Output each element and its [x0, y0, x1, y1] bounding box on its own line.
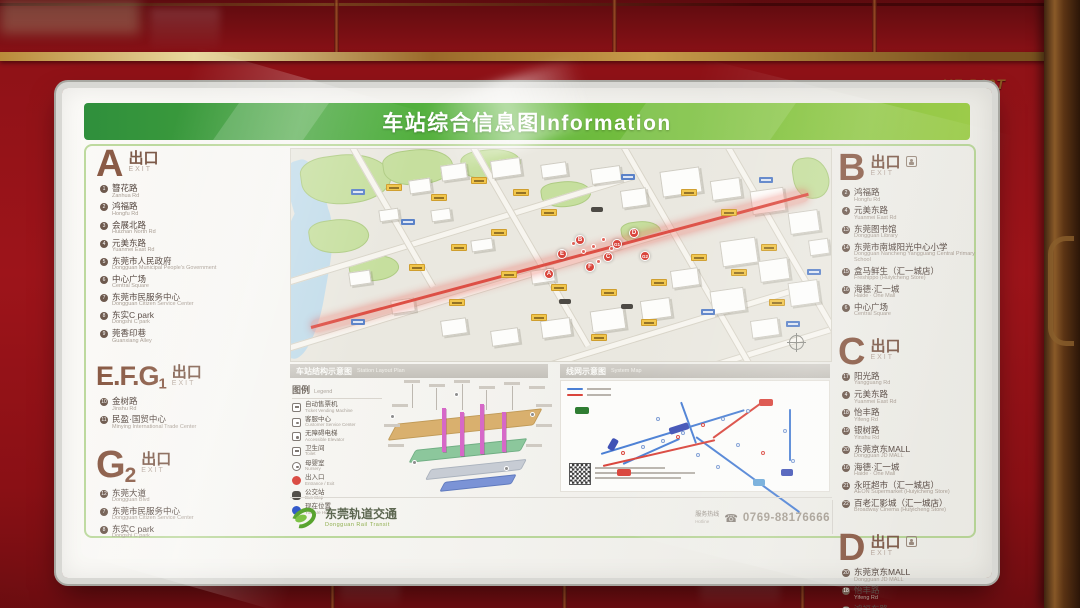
- legend-label-en: Toilet: [305, 452, 325, 457]
- exit-destination: 10金树路Jinshu Rd: [100, 397, 280, 412]
- destination-text: 东莞大道Dongguan Blvd: [112, 489, 150, 504]
- map-building: [808, 238, 830, 257]
- poi-number-badge: 21: [842, 482, 850, 490]
- exit-destination: 3会展北路Huizhan North Rd: [100, 221, 280, 236]
- destination-en: Minying International Trade Center: [112, 425, 196, 431]
- map-building: [640, 297, 672, 321]
- destination-text: 东莞市民服务中心Dongguan Citizen Service Center: [112, 507, 194, 522]
- bus-stop-label: [559, 299, 571, 304]
- poi-number-badge: 22: [842, 500, 850, 508]
- destination-en: Yuanmei East Rd: [854, 400, 897, 406]
- road-label: [786, 321, 800, 327]
- road-label: [759, 177, 773, 183]
- wall-seam: [330, 578, 335, 608]
- poi-number-badge: 4: [100, 240, 108, 248]
- exit-destination: 22百老汇影城（汇一城店）Broadway Cinema (Huiyicheng…: [842, 499, 976, 514]
- poi-label: [451, 244, 467, 251]
- map-building: [787, 279, 820, 307]
- station-level-slab: [409, 438, 528, 463]
- poi-number-badge: 5: [100, 258, 108, 266]
- footer-vertical-divider: [832, 500, 833, 534]
- destination-text: 东莞市民服务中心Dongguan Citizen Service Center: [112, 293, 194, 308]
- title-banner: 车站综合信息图Information: [84, 103, 970, 140]
- legend-text: 自动售票机Ticket Vending Machine: [305, 402, 353, 413]
- exit-destination: 9莞香印巷Guanxiang Alley: [100, 329, 280, 344]
- map-building: [490, 327, 520, 347]
- exit-destination: 4元美东路Yuanmei East Rd: [100, 239, 280, 254]
- poi-label: [431, 194, 447, 201]
- station-dot: [621, 451, 625, 455]
- map-building: [590, 307, 627, 334]
- qr-caption-line: [595, 472, 695, 474]
- destination-en: Dongguan Library: [854, 234, 898, 240]
- destination-en: Zanhua Rd: [112, 194, 139, 200]
- poi-label: [681, 189, 697, 196]
- exit-destination: 12东莞大道Dongguan Blvd: [100, 489, 280, 504]
- structure-exit-dot: [454, 392, 459, 397]
- map-building: [490, 157, 522, 179]
- legend-title: 图例 Legend: [292, 383, 382, 399]
- station-dot: [791, 459, 795, 463]
- map-exit-badge: D: [629, 228, 639, 238]
- legend-label-en: Nursery: [305, 467, 325, 472]
- wall-reflection: [700, 580, 780, 608]
- destination-en: Dongguan Citizen Service Center: [112, 302, 194, 308]
- wall-seam: [0, 3, 1080, 6]
- station-dot: [676, 435, 680, 439]
- destination-text: 会展北路Huizhan North Rd: [112, 221, 156, 236]
- exit-group-e.f.g1: E.F.G1出口EXIT10金树路Jinshu Rd11民盈·国贸中心Minyi…: [96, 362, 280, 433]
- exit-destination: 6中心广场Central Square: [100, 275, 280, 290]
- poi-number-badge: 20: [842, 569, 850, 577]
- information-board: 车站综合信息图Information A出口EXIT1簪花路Zanhua Rd2…: [62, 88, 992, 578]
- exit-destination: 6中心广场Central Square: [842, 303, 976, 318]
- layout-title: 车站结构示意图: [296, 366, 352, 377]
- poi-number-badge: 6: [842, 304, 850, 312]
- brand-logo-icon: [290, 508, 318, 528]
- legend-text: 客服中心Customer Service Center: [305, 417, 356, 428]
- legend-label-en: Entrance / Exit: [305, 482, 334, 487]
- structure-exit-dot: [530, 412, 535, 417]
- exit-label-zh: 出口: [870, 155, 900, 170]
- poi-label: [761, 244, 777, 251]
- map-building: [348, 270, 372, 287]
- exit-destination: 8东实C parkDongshi C park: [100, 525, 280, 540]
- elevator-shaft: [442, 408, 446, 452]
- poi-number-badge: 6: [100, 276, 108, 284]
- callout-label: [529, 386, 545, 389]
- exit-letter: E.F.G1: [96, 362, 166, 393]
- exit-letter: B: [838, 152, 864, 184]
- destination-en: Broadway Cinema (Huiyicheng Store): [854, 508, 948, 514]
- destination-en: Huizhan North Rd: [112, 230, 156, 236]
- station-photo: HF-P19T 车站综合信息图Information A出口EXIT1簪花路Za…: [0, 0, 1080, 608]
- destination-text: 海德·汇一城Haide · One Mall: [854, 463, 899, 478]
- station-dot: [696, 453, 700, 457]
- elevator-shaft: [502, 412, 506, 452]
- callout-label: [504, 382, 520, 385]
- legend-text: 母婴室Nursery: [305, 461, 325, 472]
- exit-group-d: D出口EXIT20东莞京东MALLDongguan JD MALL18怡丰路Yi…: [838, 532, 976, 608]
- footer-divider-line: [290, 497, 832, 498]
- exit-group-a: A出口EXIT1簪花路Zanhua Rd2鸿福路Hongfu Rd3会展北路Hu…: [96, 148, 280, 347]
- callout-line: [462, 384, 463, 410]
- callout-label: [526, 444, 542, 447]
- exit-header: B出口EXIT: [838, 152, 976, 184]
- destination-en: Hongfu Rd: [112, 212, 138, 218]
- elevator-icon: [906, 536, 917, 547]
- poi-number-badge: 2: [100, 203, 108, 211]
- exit-header: C出口EXIT: [838, 336, 976, 368]
- nursery-icon: [292, 462, 301, 471]
- qr-caption-line: [595, 477, 681, 479]
- map-building: [670, 267, 700, 289]
- qr-code: [569, 463, 591, 485]
- legend-label-en: Customer Service Center: [305, 423, 356, 428]
- poi-label: [501, 271, 517, 278]
- map-exit-badge: G2: [640, 251, 650, 261]
- map-building: [788, 209, 821, 235]
- legend-title-en: Legend: [314, 389, 332, 395]
- poi-number-badge: 7: [100, 294, 108, 302]
- destination-text: 海德·汇一城Haide · One Mall: [854, 285, 899, 300]
- line-name-badge: [668, 422, 689, 435]
- exit-destination: 4元美东路Yuanmei East Rd: [842, 390, 976, 405]
- exit-label-en: EXIT: [870, 170, 900, 177]
- service-center-icon: [292, 418, 301, 427]
- poi-number-badge: 11: [100, 416, 108, 424]
- hotline-label: 服务热线 Hotline: [695, 512, 719, 524]
- destination-en: Yangguang Rd: [854, 381, 890, 387]
- map-building: [470, 238, 493, 253]
- poi-label: [691, 254, 707, 261]
- map-exit-badge: C: [603, 252, 613, 262]
- exit-label-zh: 出口: [128, 151, 158, 166]
- road-label: [351, 319, 365, 325]
- station-dot: [681, 431, 685, 435]
- exit-letter: C: [838, 336, 864, 368]
- exit-destination: 18怡丰路Yifeng Rd: [842, 408, 976, 423]
- poi-number-badge: 4: [842, 207, 850, 215]
- phone-icon: ☎: [724, 512, 738, 525]
- exit-destination: 23鸿福东路Hongfu East Rd: [842, 605, 976, 608]
- poi-label: [531, 314, 547, 321]
- destination-text: 百老汇影城（汇一城店）Broadway Cinema (Huiyicheng S…: [854, 499, 948, 514]
- destination-en: Guanxiang Alley: [112, 339, 152, 345]
- structure-exit-dot: [390, 414, 395, 419]
- destination-en: Dongguan JD MALL: [854, 454, 910, 460]
- station-structure-diagram: [384, 380, 550, 492]
- station-poi-dot: [581, 249, 586, 254]
- road-label: [351, 189, 365, 195]
- callout-label: [392, 404, 408, 407]
- station-dot: [701, 423, 705, 427]
- exit-label: 出口EXIT: [870, 532, 900, 557]
- rail-line: [712, 401, 763, 439]
- poi-label: [513, 189, 529, 196]
- destination-text: 民盈·国贸中心Minying International Trade Cente…: [112, 415, 196, 430]
- exit-letter-sub: 2: [125, 464, 136, 487]
- poi-label: [491, 229, 507, 236]
- legend-item: 出入口Entrance / Exit: [292, 475, 382, 486]
- callout-label: [454, 380, 470, 383]
- destination-text: 盒马鲜生（汇一城店）Freshippo (Huiyicheng Store): [854, 267, 939, 282]
- poi-label: [409, 264, 425, 271]
- brand-name-en: Dongguan Rail Transit: [325, 522, 397, 528]
- station-dot: [736, 443, 740, 447]
- destination-text: 怡丰路Yifeng Rd: [854, 586, 880, 601]
- exit-destination: 2鸿福路Hongfu Rd: [100, 202, 280, 217]
- structure-exit-dot: [504, 466, 509, 471]
- destination-en: Dongguan Blvd: [112, 498, 150, 504]
- map-exit-badge: G1: [612, 239, 622, 249]
- exit-group-b: B出口EXIT2鸿福路Hongfu Rd4元美东路Yuanmei East Rd…: [838, 152, 976, 321]
- legend-item: 母婴室Nursery: [292, 461, 382, 472]
- destination-text: 中心广场Central Square: [112, 275, 149, 290]
- board-title: 车站综合信息图Information: [382, 107, 672, 137]
- poi-number-badge: 2: [842, 189, 850, 197]
- exit-header: A出口EXIT: [96, 148, 280, 180]
- legend-item: 客服中心Customer Service Center: [292, 417, 382, 428]
- destination-en: Haide · One Mall: [854, 294, 899, 300]
- poi-number-badge: 18: [842, 587, 850, 595]
- poi-number-badge: 14: [842, 244, 850, 252]
- area-map: ABCDEFG1G2: [290, 148, 832, 362]
- exit-letter-sub: 1: [159, 377, 166, 393]
- poi-number-badge: 7: [100, 508, 108, 516]
- exit-destination: 20东莞京东MALLDongguan JD MALL: [842, 568, 976, 583]
- destination-en: Dongguan JD MALL: [854, 578, 910, 584]
- rail-line: [789, 409, 791, 461]
- exit-destination: 2鸿福路Hongfu Rd: [842, 188, 976, 203]
- poi-number-badge: 1: [100, 185, 108, 193]
- map-building: [750, 317, 780, 339]
- callout-label: [536, 424, 552, 427]
- poi-number-badge: 8: [100, 526, 108, 534]
- poi-number-badge: 16: [842, 286, 850, 294]
- exit-destination: 18怡丰路Yifeng Rd: [842, 586, 976, 601]
- layout-title-en: Station Layout Plan: [357, 368, 405, 374]
- poi-number-badge: 13: [842, 226, 850, 234]
- network-section-header: 线网示意图 System Map: [560, 364, 830, 378]
- line-name-badge: [753, 479, 765, 486]
- destination-en: Freshippo (Huiyicheng Store): [854, 276, 939, 282]
- destination-text: 鸿福路Hongfu Rd: [854, 188, 880, 203]
- legend-item: 自动售票机Ticket Vending Machine: [292, 402, 382, 413]
- destination-en: Dongshi C park: [112, 320, 154, 326]
- map-exit-badge: E: [557, 249, 567, 259]
- map-building: [719, 237, 758, 268]
- exit-header: E.F.G1出口EXIT: [96, 362, 280, 393]
- line-legend-label: [587, 388, 611, 390]
- destination-en: Yinshu Rd: [854, 436, 880, 442]
- exit-label: 出口EXIT: [128, 148, 158, 173]
- destination-en: Yuanmei East Rd: [112, 248, 155, 254]
- legend: 图例 Legend 自动售票机Ticket Vending Machine客服中…: [292, 383, 382, 519]
- exit-header: G2出口EXIT: [96, 449, 280, 485]
- poi-label: [386, 184, 402, 191]
- map-exit-badge: F: [585, 262, 595, 272]
- exit-destination: 16海德·汇一城Haide · One Mall: [842, 285, 976, 300]
- layout-section-header: 车站结构示意图 Station Layout Plan: [290, 364, 548, 378]
- destination-en: Yifeng Rd: [854, 596, 880, 602]
- destination-text: 莞香印巷Guanxiang Alley: [112, 329, 152, 344]
- door-frame: [1044, 0, 1080, 608]
- exit-destination: 8东实C parkDongshi C park: [100, 311, 280, 326]
- poi-label: [471, 177, 487, 184]
- station-dot: [641, 445, 645, 449]
- structure-exit-dot: [412, 460, 417, 465]
- exit-destination: 19银树路Yinshu Rd: [842, 426, 976, 441]
- exit-destination: 4元美东路Yuanmei East Rd: [842, 206, 976, 221]
- exit-letter: G2: [96, 449, 135, 485]
- rail-line: [623, 438, 680, 465]
- legend-title-zh: 图例: [292, 383, 310, 396]
- station-dot: [656, 417, 660, 421]
- legend-item: 公交站Bus Stop: [292, 490, 382, 501]
- destination-text: 簪花路Zanhua Rd: [112, 184, 139, 199]
- bus-stop-label: [591, 207, 603, 212]
- map-building: [709, 287, 746, 315]
- map-exit-badge: B: [575, 235, 585, 245]
- callout-line: [512, 386, 513, 410]
- legend-text: 出入口Entrance / Exit: [305, 475, 334, 486]
- exit-label-zh: 出口: [141, 452, 171, 467]
- legend-label-en: Ticket Vending Machine: [305, 409, 353, 414]
- destination-en: Central Square: [112, 284, 149, 290]
- poi-label: [541, 209, 557, 216]
- wall-gold-seam: [0, 52, 1080, 61]
- exit-destination: 16海德·汇一城Haide · One Mall: [842, 463, 976, 478]
- map-building: [430, 208, 451, 223]
- destination-text: 永旺超市（汇一城店）AEON Supermarket (Huiyicheng S…: [854, 481, 950, 496]
- elevator-icon: [906, 156, 917, 167]
- footer: 东莞轨道交通 Dongguan Rail Transit 服务热线 Hotlin…: [290, 501, 830, 535]
- exit-label: 出口EXIT: [870, 336, 900, 361]
- network-title-en: System Map: [611, 368, 642, 374]
- callout-line: [412, 384, 413, 408]
- map-building: [440, 317, 468, 336]
- rail-network-map: [560, 380, 830, 492]
- exit-destination: 11民盈·国贸中心Minying International Trade Cen…: [100, 415, 280, 430]
- poi-number-badge: 15: [842, 268, 850, 276]
- line-name-badge: [781, 469, 793, 476]
- poi-number-badge: 19: [842, 427, 850, 435]
- exit-letter: A: [96, 148, 122, 180]
- destination-text: 鸿福东路Hongfu East Rd: [854, 605, 893, 608]
- station-poi-dot: [601, 237, 606, 242]
- callout-line: [436, 388, 437, 410]
- destination-text: 银树路Yinshu Rd: [854, 426, 880, 441]
- wall-seam: [800, 578, 805, 608]
- exit-label-en: EXIT: [870, 550, 900, 557]
- destination-text: 东莞京东MALLDongguan JD MALL: [854, 568, 910, 583]
- station-poi-dot: [596, 259, 601, 264]
- hotline-label-zh: 服务热线: [695, 512, 719, 519]
- exit-destination: 1簪花路Zanhua Rd: [100, 184, 280, 199]
- poi-number-badge: 4: [842, 391, 850, 399]
- exit-label-en: EXIT: [172, 380, 202, 387]
- elevator-icon: [292, 432, 301, 441]
- exit-label-en: EXIT: [870, 354, 900, 361]
- map-building: [440, 162, 468, 181]
- poi-label: [641, 319, 657, 326]
- exit-destination: 15盒马鲜生（汇一城店）Freshippo (Huiyicheng Store): [842, 267, 976, 282]
- exit-label: 出口EXIT: [172, 362, 202, 387]
- road-label: [401, 219, 415, 225]
- hotline-label-en: Hotline: [695, 519, 719, 524]
- destination-text: 怡丰路Yifeng Rd: [854, 408, 880, 423]
- exit-destination: 7东莞市民服务中心Dongguan Citizen Service Center: [100, 507, 280, 522]
- rail-line: [567, 388, 583, 390]
- exit-label-zh: 出口: [870, 339, 900, 354]
- exit-badge-icon: [292, 476, 301, 485]
- exit-destination: 5东莞市人民政府Dongguan Municipal People's Gove…: [100, 257, 280, 272]
- poi-number-badge: 9: [100, 330, 108, 338]
- hotline: 服务热线 Hotline ☎ 0769-88176666: [695, 512, 830, 525]
- poi-label: [449, 299, 465, 306]
- destination-en: Central Square: [854, 312, 891, 318]
- tvm-icon: [292, 403, 301, 412]
- exit-column-right: B出口EXIT2鸿福路Hongfu Rd4元美东路Yuanmei East Rd…: [838, 152, 976, 608]
- legend-item: 无障碍电梯Accessible Elevator: [292, 431, 382, 442]
- map-building: [620, 187, 648, 208]
- network-title: 线网示意图: [566, 366, 606, 377]
- callout-label: [384, 424, 400, 427]
- station-dot: [661, 439, 665, 443]
- wall-seam: [612, 0, 617, 52]
- destination-en: Hongfu Rd: [854, 198, 880, 204]
- destination-text: 东莞图书馆Dongguan Library: [854, 225, 898, 240]
- destination-text: 东莞市南城阳光中心小学Dongguan Nancheng Yangguang C…: [854, 243, 976, 264]
- legend-text: 无障碍电梯Accessible Elevator: [305, 431, 344, 442]
- exit-column-left: A出口EXIT1簪花路Zanhua Rd2鸿福路Hongfu Rd3会展北路Hu…: [96, 148, 280, 558]
- exit-letter: D: [838, 532, 864, 564]
- poi-number-badge: 12: [100, 490, 108, 498]
- bus-stop-label: [621, 304, 633, 309]
- line-name-badge: [575, 407, 589, 414]
- brand-name: 东莞轨道交通: [325, 508, 397, 521]
- line-name-badge: [759, 399, 773, 406]
- toilet-icon: [292, 447, 301, 456]
- exit-label-en: EXIT: [141, 467, 171, 474]
- wall-reflection: [340, 580, 400, 608]
- exit-destination: 20东莞京东MALLDongguan JD MALL: [842, 445, 976, 460]
- line-name-badge: [617, 469, 631, 476]
- exit-label-en: EXIT: [128, 166, 158, 173]
- exit-group-g2: G2出口EXIT12东莞大道Dongguan Blvd7东莞市民服务中心Dong…: [96, 449, 280, 543]
- bus-stop-icon: [292, 491, 301, 500]
- poi-number-badge: 3: [100, 222, 108, 230]
- exit-destination: 21永旺超市（汇一城店）AEON Supermarket (Huiyicheng…: [842, 481, 976, 496]
- exit-destination: 7东莞市民服务中心Dongguan Citizen Service Center: [100, 293, 280, 308]
- destination-en: Dongguan Municipal People's Government: [112, 266, 216, 272]
- wall-seam: [562, 578, 567, 608]
- legend-text: 卫生间Toilet: [305, 446, 325, 457]
- station-dot: [783, 429, 787, 433]
- poi-label: [591, 334, 607, 341]
- poi-label: [651, 279, 667, 286]
- legend-text: 公交站Bus Stop: [305, 490, 325, 501]
- exit-label: 出口EXIT: [141, 449, 171, 474]
- destination-en: Dongguan Nancheng Yangguang Central Prim…: [854, 252, 976, 264]
- callout-label: [404, 380, 420, 383]
- poi-label: [601, 289, 617, 296]
- map-building: [540, 161, 568, 178]
- rail-line: [567, 394, 583, 396]
- station-dot: [761, 451, 765, 455]
- legend-label-en: Accessible Elevator: [305, 438, 344, 443]
